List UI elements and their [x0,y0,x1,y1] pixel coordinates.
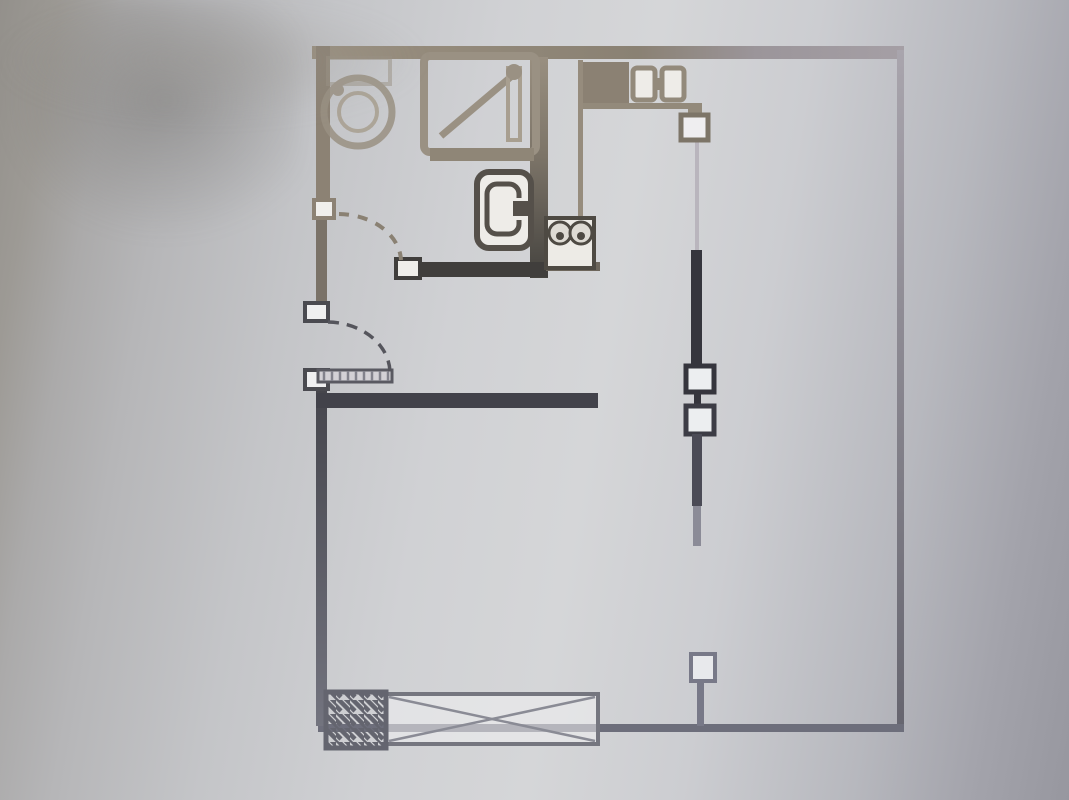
door-swing-arc [328,322,390,373]
wall-left-lower [316,389,327,726]
terrace-post [686,366,714,392]
toilet-symbol [477,172,531,248]
door-jamb [314,200,334,218]
room-sejour-walls [316,393,598,408]
kitchen-sink-symbol [633,68,684,100]
floor-plan-photo: SDE-WC 3,6m² Cuisine 3,4m² Entrée 3,4m² … [0,0,1069,800]
wall-right [897,50,904,728]
wall-top [312,46,904,59]
shower-symbol [424,56,536,161]
wall-cuisine-left [578,60,583,218]
washbasin-symbol [324,58,392,146]
wall-left-mid [316,218,327,305]
door-swing-arc [339,214,401,260]
outer-walls [312,46,904,732]
floor-plan-drawing [0,0,1069,800]
stove-symbol [546,218,594,268]
terrace-post [691,654,715,681]
terrace-wall [681,115,715,726]
terrace-post [686,406,714,434]
bay-window-symbol [386,694,598,744]
terrace-post [681,115,708,140]
wall-sejour-top [316,393,598,408]
door-jamb [305,303,328,321]
door-jamb [396,259,420,278]
hatched-wall-section [326,692,386,748]
entrance-door [305,303,392,389]
